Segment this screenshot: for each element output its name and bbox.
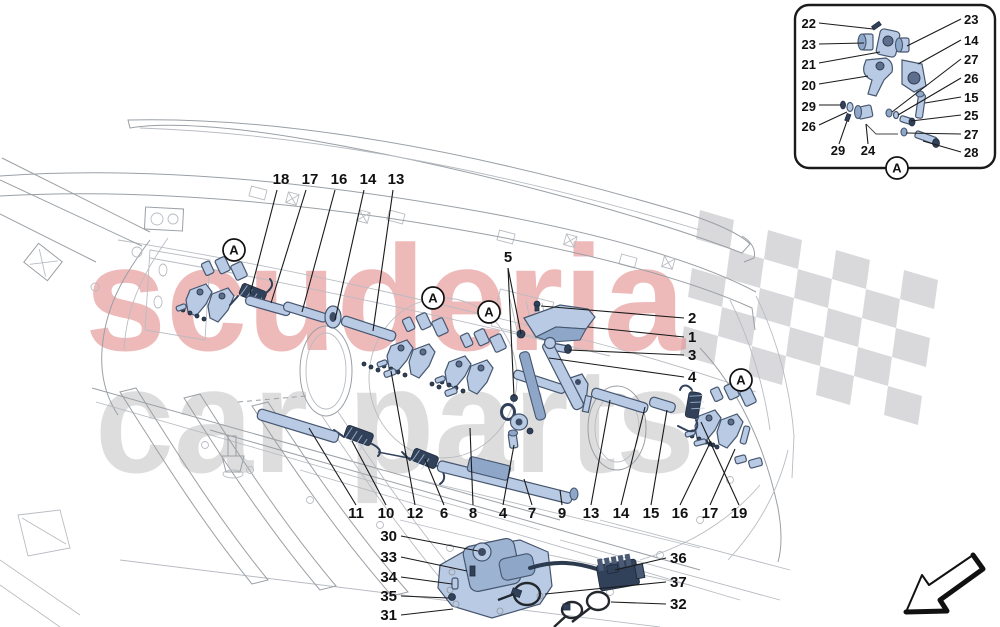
callout-label-23: 23 bbox=[964, 12, 978, 27]
callout-label-9: 9 bbox=[558, 505, 566, 522]
checker-cell bbox=[832, 250, 870, 289]
bushing-24 bbox=[855, 105, 874, 120]
callout-label-24: 24 bbox=[861, 143, 876, 158]
checker-cell bbox=[862, 289, 900, 328]
callout-label-11: 11 bbox=[348, 505, 364, 522]
callout-label-20: 20 bbox=[802, 78, 816, 93]
callout-label-26: 26 bbox=[802, 119, 816, 134]
callout-label-17: 17 bbox=[702, 505, 719, 522]
checker-cell bbox=[884, 386, 922, 425]
callout-label-30: 30 bbox=[380, 528, 397, 545]
callout-label-4: 4 bbox=[499, 505, 508, 522]
bolt-right bbox=[740, 426, 750, 445]
screw-33 bbox=[470, 566, 475, 576]
callout-label-10: 10 bbox=[378, 505, 395, 522]
callout-label-7: 7 bbox=[528, 505, 536, 522]
inset-detail-box bbox=[795, 5, 995, 168]
washer-26b bbox=[894, 112, 899, 119]
detail-marker-A: A bbox=[730, 369, 752, 391]
callout-label-29: 29 bbox=[802, 99, 816, 114]
callout-label-22: 22 bbox=[802, 16, 816, 31]
callout-label-26: 26 bbox=[964, 71, 978, 86]
checker-cell bbox=[786, 327, 824, 366]
callout-label-29: 29 bbox=[831, 143, 845, 158]
callout-label-31: 31 bbox=[380, 607, 397, 624]
callout-label-17: 17 bbox=[302, 171, 319, 188]
callout-label-37: 37 bbox=[670, 574, 687, 591]
callout-label-4: 4 bbox=[688, 369, 697, 386]
svg-text:A: A bbox=[736, 373, 746, 388]
bolt-4 bbox=[508, 430, 518, 448]
checker-cell bbox=[816, 366, 854, 405]
cap-23-left bbox=[858, 34, 873, 50]
detail-marker-A: A bbox=[422, 287, 444, 309]
washer-26 bbox=[847, 103, 853, 112]
leader-line bbox=[611, 602, 666, 604]
callout-label-12: 12 bbox=[407, 505, 424, 522]
callout-label-23: 23 bbox=[802, 37, 816, 52]
checker-cell bbox=[726, 249, 764, 288]
callout-label-36: 36 bbox=[670, 550, 687, 567]
checker-cell bbox=[688, 268, 726, 307]
callout-label-16: 16 bbox=[672, 505, 689, 522]
checker-cell bbox=[900, 270, 938, 309]
svg-text:A: A bbox=[428, 291, 438, 306]
callout-label-1: 1 bbox=[688, 329, 696, 346]
callout-label-14: 14 bbox=[360, 171, 377, 188]
screw-35 bbox=[449, 594, 456, 601]
checker-cell bbox=[764, 230, 802, 269]
checker-cell bbox=[854, 347, 892, 386]
callout-label-32: 32 bbox=[670, 596, 687, 613]
callout-label-6: 6 bbox=[440, 505, 448, 522]
callout-label-14: 14 bbox=[964, 33, 979, 48]
callout-label-15: 15 bbox=[643, 505, 660, 522]
callout-label-13: 13 bbox=[388, 171, 405, 188]
cap-23-right bbox=[896, 38, 910, 52]
callout-label-28: 28 bbox=[964, 145, 978, 160]
callout-label-19: 19 bbox=[731, 505, 748, 522]
leader-line bbox=[401, 609, 453, 615]
callout-label-2: 2 bbox=[688, 310, 696, 327]
bolt-34 bbox=[452, 578, 458, 589]
direction-arrow bbox=[906, 555, 983, 612]
callout-label-34: 34 bbox=[380, 569, 397, 586]
callout-label-33: 33 bbox=[380, 549, 397, 566]
washer-27 bbox=[886, 109, 892, 117]
checker-cell bbox=[748, 346, 786, 385]
callout-label-3: 3 bbox=[688, 347, 696, 364]
callout-label-5: 5 bbox=[504, 249, 512, 266]
checker-cell bbox=[892, 328, 930, 367]
parts-diagram-page: scuderia car parts bbox=[0, 0, 1000, 627]
detail-marker-A: A bbox=[223, 239, 245, 261]
checker-cell bbox=[718, 307, 756, 346]
actuator-assembly bbox=[438, 537, 646, 627]
callout-label-27: 27 bbox=[964, 127, 978, 142]
checker-cell bbox=[824, 308, 862, 347]
screw-2 bbox=[534, 301, 540, 311]
callout-label-15: 15 bbox=[964, 90, 978, 105]
callout-label-25: 25 bbox=[964, 108, 978, 123]
callout-label-18: 18 bbox=[273, 171, 290, 188]
callout-label-21: 21 bbox=[802, 57, 816, 72]
svg-text:A: A bbox=[892, 161, 902, 176]
callout-label-8: 8 bbox=[469, 505, 477, 522]
svg-text:A: A bbox=[229, 243, 239, 258]
callout-label-27: 27 bbox=[964, 52, 978, 67]
checker-cell bbox=[794, 269, 832, 308]
callout-label-16: 16 bbox=[331, 171, 348, 188]
clip-36 bbox=[606, 564, 618, 574]
connector bbox=[595, 552, 646, 592]
svg-text:A: A bbox=[484, 305, 494, 320]
detail-marker-A: A bbox=[478, 301, 500, 323]
joint-14 bbox=[325, 306, 341, 328]
callout-label-14: 14 bbox=[613, 505, 630, 522]
callout-label-35: 35 bbox=[380, 588, 397, 605]
washer-29 bbox=[841, 101, 846, 109]
detail-marker-A: A bbox=[886, 157, 908, 179]
callout-label-13: 13 bbox=[583, 505, 600, 522]
exploded-parts-diagram: scuderia car parts bbox=[0, 0, 1000, 627]
washer-27b bbox=[901, 128, 907, 136]
